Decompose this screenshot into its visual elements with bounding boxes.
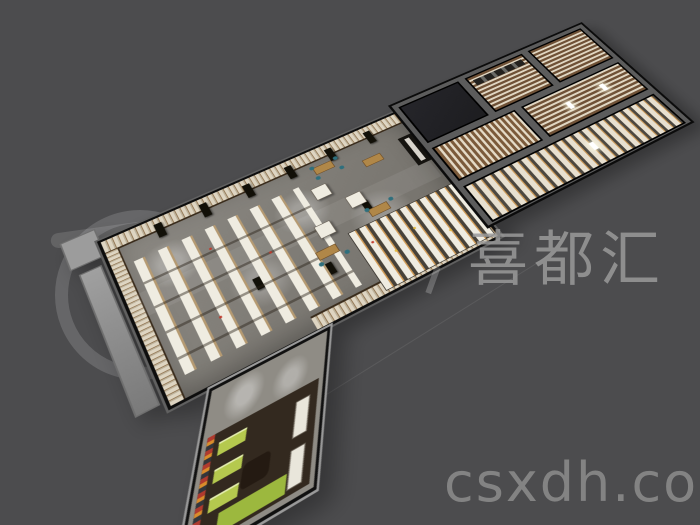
dark-cabinet-row xyxy=(473,59,526,85)
lit-display-tower xyxy=(599,83,609,91)
green-display-counter xyxy=(212,454,243,484)
lit-display-tower xyxy=(588,142,599,151)
lit-display-tower xyxy=(565,101,575,109)
render-canvas: { "watermark": { "brand_cn": "喜都汇", "sit… xyxy=(0,0,700,525)
white-display-counter xyxy=(287,443,306,492)
chair xyxy=(339,165,345,170)
watermark-brand-text: 喜都汇 xyxy=(468,230,666,290)
green-display-counter xyxy=(217,427,247,456)
chair xyxy=(315,175,321,180)
green-shop-unit xyxy=(187,378,319,525)
chair xyxy=(344,249,351,255)
wooden-consult-table xyxy=(362,153,385,167)
white-display-counter xyxy=(292,394,310,439)
watermark-website-text: csxdh.com xyxy=(444,456,700,510)
wooden-consult-table xyxy=(312,160,335,175)
chair xyxy=(332,156,338,161)
island-display-case xyxy=(310,183,332,201)
